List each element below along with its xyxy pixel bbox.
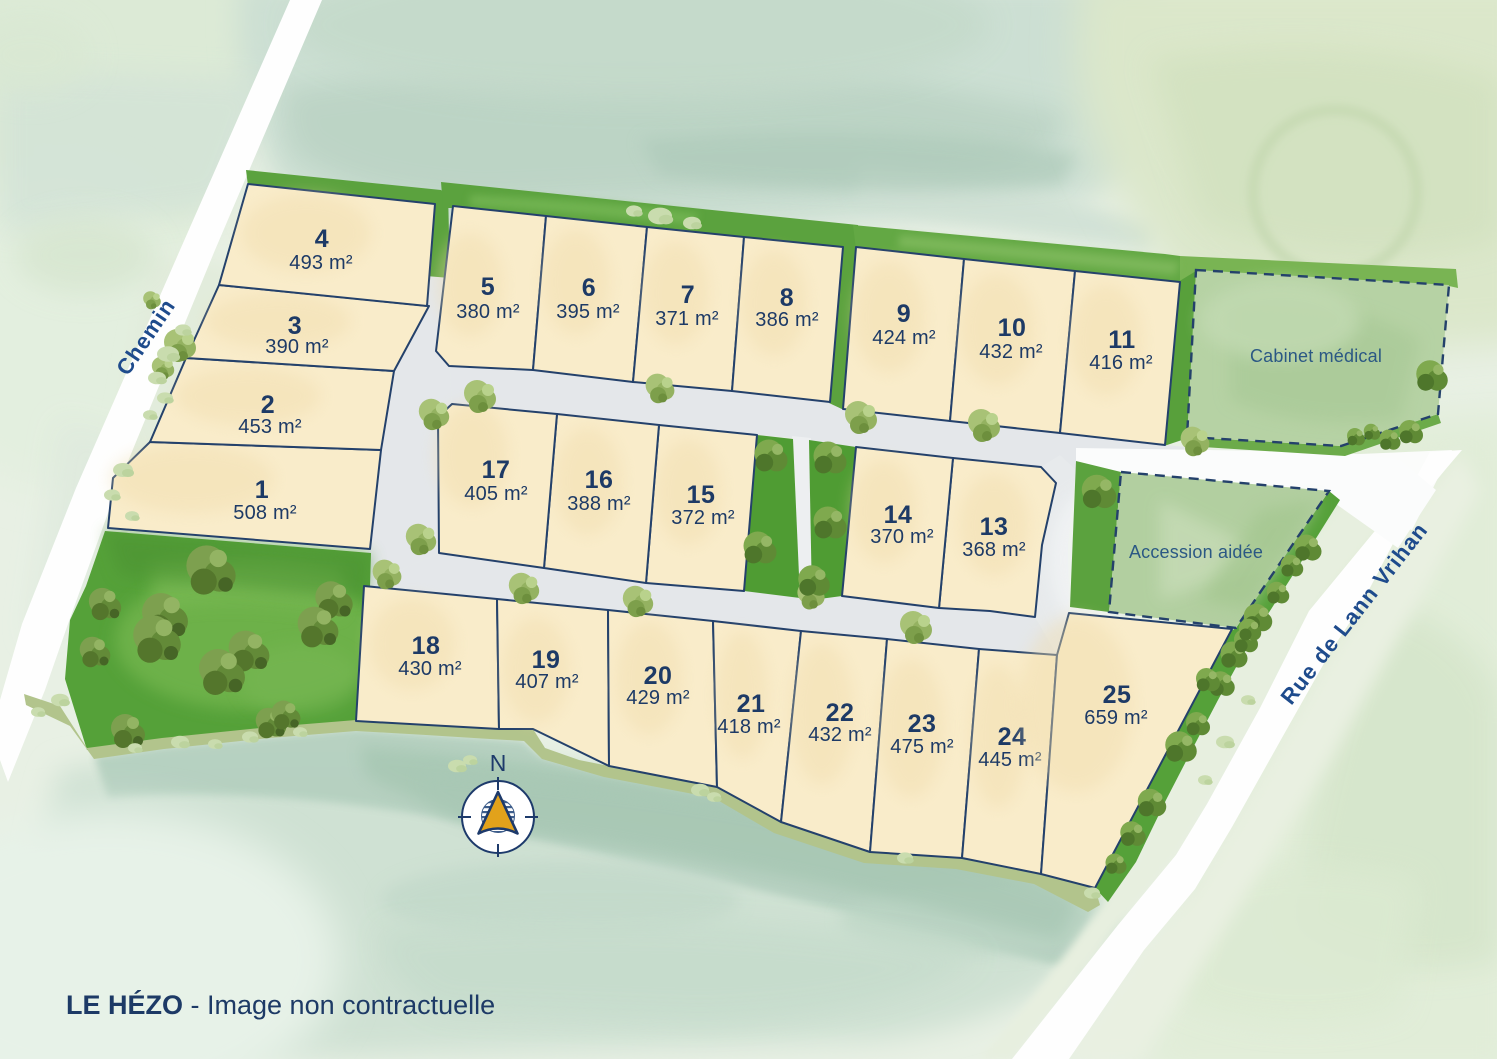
svg-text:5: 5 xyxy=(481,273,495,301)
svg-text:371 m²: 371 m² xyxy=(655,308,719,330)
svg-text:LE HÉZO - Image non contractue: LE HÉZO - Image non contractuelle xyxy=(66,989,495,1020)
svg-text:23: 23 xyxy=(908,710,937,738)
svg-text:13: 13 xyxy=(980,513,1009,541)
svg-text:14: 14 xyxy=(884,501,913,529)
svg-text:16: 16 xyxy=(585,466,614,494)
svg-text:2: 2 xyxy=(261,391,275,419)
svg-text:475 m²: 475 m² xyxy=(890,736,954,758)
svg-text:Accession aidée: Accession aidée xyxy=(1129,542,1263,562)
svg-text:390 m²: 390 m² xyxy=(265,336,329,358)
svg-text:Cabinet médical: Cabinet médical xyxy=(1250,346,1382,366)
svg-text:9: 9 xyxy=(897,300,911,328)
svg-text:407 m²: 407 m² xyxy=(515,671,579,693)
svg-text:18: 18 xyxy=(412,632,441,660)
svg-text:17: 17 xyxy=(482,456,511,484)
svg-text:416 m²: 416 m² xyxy=(1089,352,1153,374)
svg-text:372 m²: 372 m² xyxy=(671,507,735,529)
svg-text:395 m²: 395 m² xyxy=(556,301,620,323)
svg-text:7: 7 xyxy=(681,281,695,309)
svg-text:15: 15 xyxy=(687,481,716,509)
svg-text:386 m²: 386 m² xyxy=(755,309,819,331)
svg-text:10: 10 xyxy=(998,314,1027,342)
svg-text:380 m²: 380 m² xyxy=(456,301,520,323)
svg-text:405 m²: 405 m² xyxy=(464,483,528,505)
svg-text:21: 21 xyxy=(737,690,766,718)
svg-text:368 m²: 368 m² xyxy=(962,539,1026,561)
svg-text:11: 11 xyxy=(1108,326,1135,354)
svg-text:418 m²: 418 m² xyxy=(717,716,781,738)
svg-text:508 m²: 508 m² xyxy=(233,502,297,524)
svg-text:N: N xyxy=(490,750,507,776)
svg-text:4: 4 xyxy=(315,225,329,253)
svg-text:8: 8 xyxy=(780,284,794,312)
svg-text:424 m²: 424 m² xyxy=(872,327,936,349)
svg-text:370 m²: 370 m² xyxy=(870,526,934,548)
svg-text:432 m²: 432 m² xyxy=(979,341,1043,363)
svg-text:493 m²: 493 m² xyxy=(289,252,353,274)
svg-text:22: 22 xyxy=(826,699,855,727)
svg-text:659 m²: 659 m² xyxy=(1084,707,1148,729)
svg-text:430 m²: 430 m² xyxy=(398,658,462,680)
svg-text:432 m²: 432 m² xyxy=(808,724,872,746)
svg-text:1: 1 xyxy=(255,476,269,504)
svg-text:6: 6 xyxy=(582,274,596,302)
svg-text:25: 25 xyxy=(1103,681,1132,709)
svg-text:20: 20 xyxy=(644,662,673,690)
svg-text:453 m²: 453 m² xyxy=(238,416,302,438)
svg-text:388 m²: 388 m² xyxy=(567,493,631,515)
svg-text:19: 19 xyxy=(532,646,561,674)
svg-text:429 m²: 429 m² xyxy=(626,687,690,709)
